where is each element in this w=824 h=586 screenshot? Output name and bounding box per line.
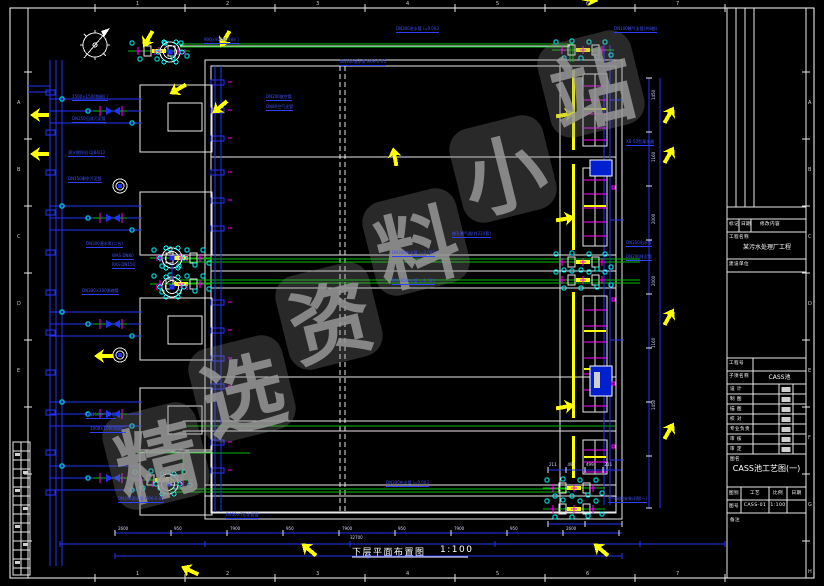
grid-numbers-top-0: 1 — [136, 1, 139, 7]
annotation-layer-14: DN300×200渐缩管 — [82, 289, 119, 295]
detail-dimensions-3: 211 — [605, 462, 613, 467]
grid-numbers-bottom-1: 2 — [226, 571, 229, 577]
grid-numbers-bottom-6: 7 — [676, 571, 679, 577]
legend-strip — [13, 442, 30, 575]
grid-letters-right-4: E — [808, 368, 811, 374]
annotation-layer-4: DN200放空管 — [266, 95, 292, 101]
sign-rows-6: 审 定 — [730, 446, 742, 452]
revision-col-date: 日期 — [741, 221, 751, 227]
drawing-scale: 1:100 — [440, 545, 473, 555]
grid-numbers-bottom-2: 3 — [316, 571, 319, 577]
grid-numbers-bottom-5: 6 — [586, 571, 589, 577]
annotation-layer-19: 微孔曝气器(共224套) — [452, 232, 491, 238]
grid-numbers-bottom-0: 1 — [136, 571, 139, 577]
right-dimensions-0: 1450 — [651, 90, 656, 100]
sign-rows-0: 设 计 — [730, 386, 742, 392]
footer-r2c1: 图号 — [727, 503, 741, 509]
bottom-dimensions-5: 950 — [398, 526, 406, 531]
annotation-layer-6: 1500×1500钢闸门 — [72, 95, 108, 101]
bottom-dimensions-1: 950 — [174, 526, 182, 531]
revision-col-desc: 修改内容 — [760, 221, 780, 227]
bottom-dimensions-2: 7900 — [230, 526, 240, 531]
annotation-layer-12: WAS-DN80 — [112, 254, 134, 260]
annotation-layer-21: 1000×1000钢闸门 — [90, 427, 126, 433]
right-dimensions-1: 1160 — [651, 152, 656, 162]
annotation-layer-18: DN200排泥管 — [626, 255, 652, 261]
bottom-dimensions-6: 7900 — [454, 526, 464, 531]
note-label: 备注 — [730, 517, 740, 523]
drawing-caption: 下层平面布置图 — [352, 545, 426, 558]
annotation-layer-1: DN100曝气支管(共8根) — [614, 27, 657, 33]
grid-letters-right-7: H — [808, 569, 812, 575]
detail-dimensions-0: 211 — [549, 462, 557, 467]
grid-letters-right-0: A — [808, 100, 811, 106]
annotation-layer-8: 潜水搅拌机 QJB4/12 — [68, 151, 105, 157]
grid-letters-left-0: A — [17, 100, 20, 106]
annotation-layer-5: DN80空气支管 — [266, 105, 293, 111]
annotation-layer-22: DN300潜水泵 M06-0.05 — [118, 497, 164, 503]
bottom-dimensions-3: 950 — [286, 526, 294, 531]
sheet-scale: 1:100 — [769, 503, 787, 508]
cad-sheet: 精选资料小站 DN300进水管 i=0.003DN100曝气支管(共8根)DN3… — [0, 0, 824, 586]
annotation-layer-23: D450×7防水套管 — [226, 513, 259, 519]
subitem-value: CASS池 — [753, 372, 806, 381]
footer-r1c2: 工艺 — [741, 490, 769, 496]
right-dimensions-3: 2000 — [651, 276, 656, 286]
dimension-total: 32700 — [350, 535, 363, 540]
drawing-title: CASS池工艺图(一) — [727, 463, 806, 474]
client-label: 建设单位 — [729, 261, 749, 267]
grid-numbers-top-2: 3 — [316, 1, 319, 7]
detail-dimensions-2: 499 — [586, 462, 594, 467]
sign-rows-4: 专业负责 — [730, 426, 750, 432]
annotation-layer-16: DN300布水管 i=0.003 — [392, 279, 435, 285]
grid-numbers-bottom-4: 5 — [496, 571, 499, 577]
project-label: 工程名称 — [729, 234, 749, 240]
annotation-layer-9: DN150剩余污泥管 — [68, 177, 102, 183]
bottom-dimensions-0: 2600 — [118, 526, 128, 531]
grid-letters-right-6: G — [808, 502, 812, 508]
annotation-layer-20: DN250空气总管 — [86, 413, 116, 419]
right-dimensions-2: 2000 — [651, 214, 656, 224]
annotation-layer-13: RAS-DN150 — [112, 263, 135, 269]
grid-numbers-bottom-3: 4 — [406, 571, 409, 577]
sheet-number: CASS-01 — [741, 503, 769, 508]
annotation-layer-0: DN300进水管 i=0.003 — [396, 27, 439, 33]
annotation-layer-11: DN300潜水泵(二台) — [86, 242, 123, 248]
bottom-dimensions-4: 7900 — [342, 526, 352, 531]
sign-rows-1: 制 图 — [730, 396, 742, 402]
detail-dimensions-1: 499 — [568, 462, 576, 467]
grid-numbers-top-6: 7 — [676, 1, 679, 7]
north-compass — [80, 28, 110, 60]
grid-numbers-top-4: 5 — [496, 1, 499, 7]
footer-r1c4: 日期 — [787, 490, 806, 496]
title-label: 图名 — [730, 456, 740, 462]
job-no-label: 工程号 — [729, 360, 744, 366]
annotation-layer-24: DN300布水管 i=0.003 — [386, 481, 429, 487]
grid-letters-left-1: B — [17, 167, 20, 173]
right-dimensions-5: 1450 — [651, 400, 656, 410]
grid-numbers-top-5: 6 — [586, 1, 589, 7]
grid-letters-right-2: C — [808, 234, 812, 240]
grid-numbers-top-1: 2 — [226, 1, 229, 7]
footer-r1c1: 图别 — [727, 490, 741, 496]
annotation-layer-17: DN350出水管 — [626, 241, 652, 247]
footer-r1c3: 比例 — [769, 490, 787, 496]
annotation-layer-3: 900×900铸铁闸门 — [204, 38, 239, 44]
grid-letters-left-4: E — [17, 368, 20, 374]
sign-rows-5: 审 核 — [730, 436, 742, 442]
grid-letters-left-2: C — [17, 234, 21, 240]
annotation-layer-25: 空气阀组安装详图(一) — [608, 497, 647, 503]
bottom-dimensions-8: 2600 — [566, 526, 576, 531]
sign-rows-2: 描 图 — [730, 406, 742, 412]
bottom-dimensions-7: 950 — [510, 526, 518, 531]
grid-letters-left-3: D — [17, 301, 21, 307]
sign-rows-3: 校 对 — [730, 416, 742, 422]
grid-letters-right-5: F — [808, 435, 811, 441]
subitem-label: 子项名称 — [729, 373, 749, 379]
annotation-layer-10: XB-50型滗水器 — [626, 140, 654, 146]
grid-letters-right-3: D — [808, 301, 812, 307]
annotation-layer-15: DN300布水管 i=0.003 — [392, 251, 435, 257]
annotation-layer-7: DN250回流污泥管 — [72, 117, 106, 123]
project-name: 某污水处理厂工程 — [729, 242, 805, 251]
annotation-layer-2: DN300潜水泵 M06-0.05 — [340, 60, 386, 66]
revision-col-mark: 标记 — [729, 221, 739, 227]
grid-numbers-top-3: 4 — [406, 1, 409, 7]
grid-letters-right-1: B — [808, 167, 811, 173]
right-dimensions-4: 1160 — [651, 338, 656, 348]
